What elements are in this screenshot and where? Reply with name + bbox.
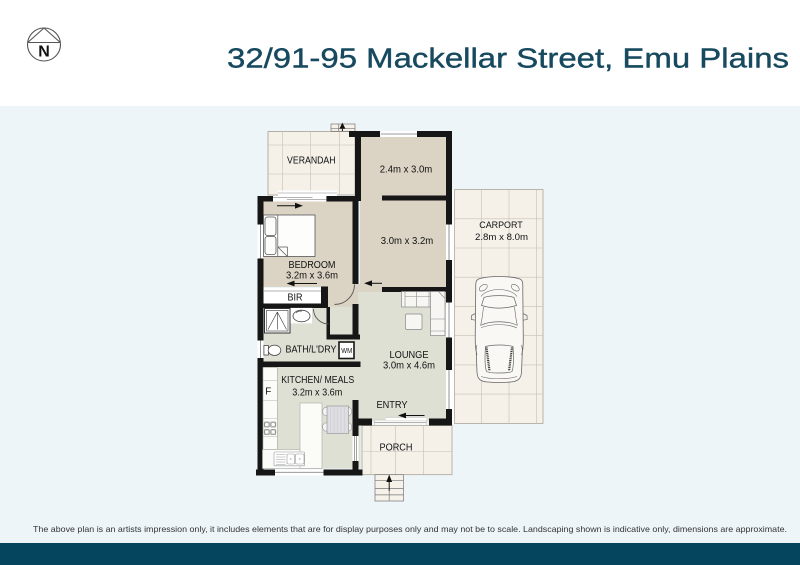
svg-text:BEDROOM: BEDROOM <box>289 260 336 271</box>
svg-text:LOUNGE: LOUNGE <box>390 350 429 361</box>
svg-text:BIR: BIR <box>288 293 303 304</box>
svg-text:BATH/L'DRY: BATH/L'DRY <box>286 345 337 356</box>
svg-text:F: F <box>265 387 271 398</box>
svg-text:ENTRY: ENTRY <box>377 400 408 411</box>
svg-text:N: N <box>38 44 50 61</box>
svg-text:3.2m x 3.6m: 3.2m x 3.6m <box>286 271 338 282</box>
svg-text:3.2m x 3.6m: 3.2m x 3.6m <box>292 388 342 399</box>
svg-text:VERANDAH: VERANDAH <box>287 156 336 167</box>
svg-text:2.4m x 3.0m: 2.4m x 3.0m <box>380 165 433 176</box>
svg-text:KITCHEN/ MEALS: KITCHEN/ MEALS <box>281 375 354 386</box>
svg-text:3.0m x 3.2m: 3.0m x 3.2m <box>381 236 434 247</box>
svg-text:2.8m x 8.0m: 2.8m x 8.0m <box>475 232 528 242</box>
svg-text:32/91-95 Mackellar Street, Emu: 32/91-95 Mackellar Street, Emu Plains <box>227 43 789 74</box>
svg-text:CARPORT: CARPORT <box>479 220 523 230</box>
svg-text:The above plan is an artists i: The above plan is an artists impression … <box>33 524 787 534</box>
svg-text:3.0m x 4.6m: 3.0m x 4.6m <box>383 361 435 372</box>
svg-text:PORCH: PORCH <box>380 443 413 454</box>
svg-text:WM: WM <box>341 346 352 355</box>
